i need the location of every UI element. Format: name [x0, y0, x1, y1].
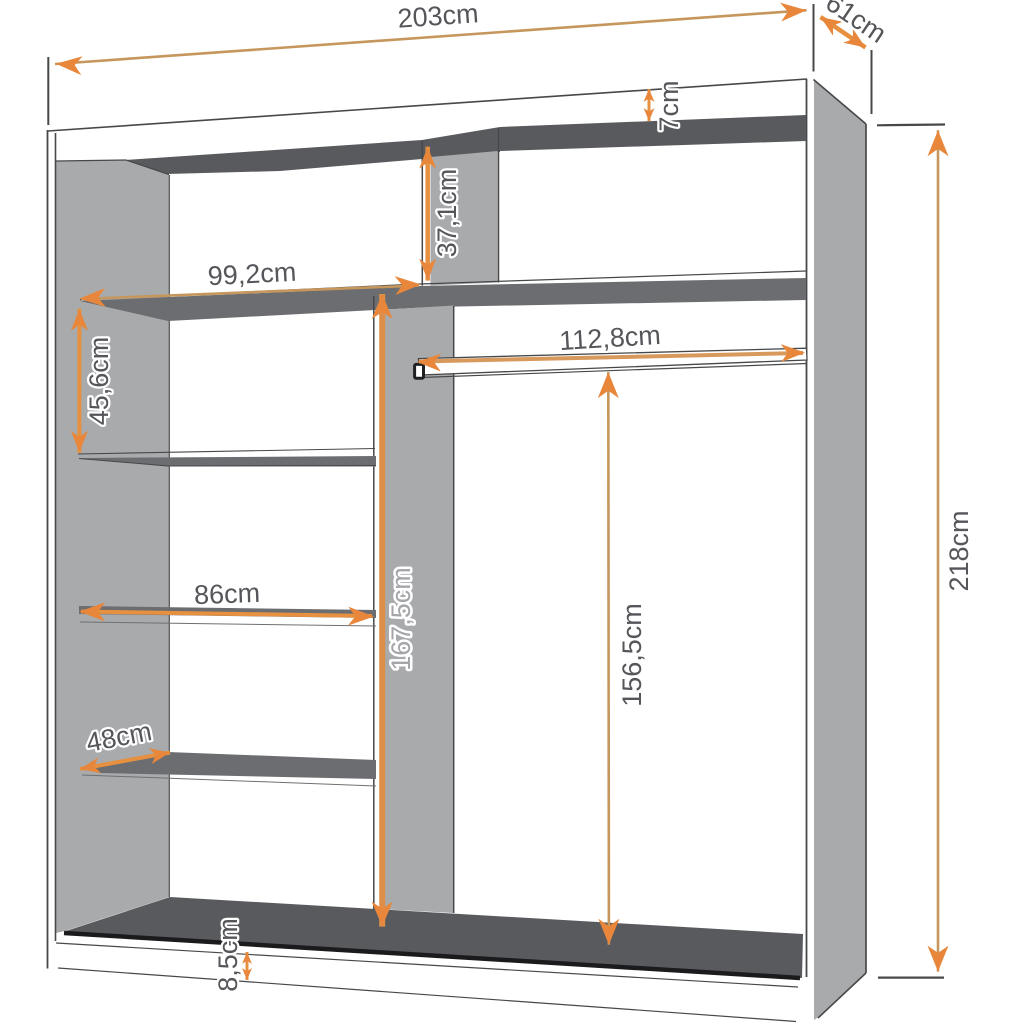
svg-text:8,5cm: 8,5cm	[213, 918, 243, 992]
svg-text:167,5cm: 167,5cm	[386, 567, 416, 671]
svg-text:7cm: 7cm	[654, 80, 684, 131]
svg-text:45,6cm: 45,6cm	[84, 337, 114, 426]
svg-text:112,8cm: 112,8cm	[558, 320, 661, 356]
svg-text:37,1cm: 37,1cm	[432, 169, 462, 258]
svg-text:99,2cm: 99,2cm	[207, 257, 297, 292]
svg-text:203cm: 203cm	[397, 0, 480, 34]
svg-text:156,5cm: 156,5cm	[617, 603, 647, 707]
svg-text:86cm: 86cm	[193, 578, 260, 610]
svg-text:218cm: 218cm	[944, 510, 974, 591]
